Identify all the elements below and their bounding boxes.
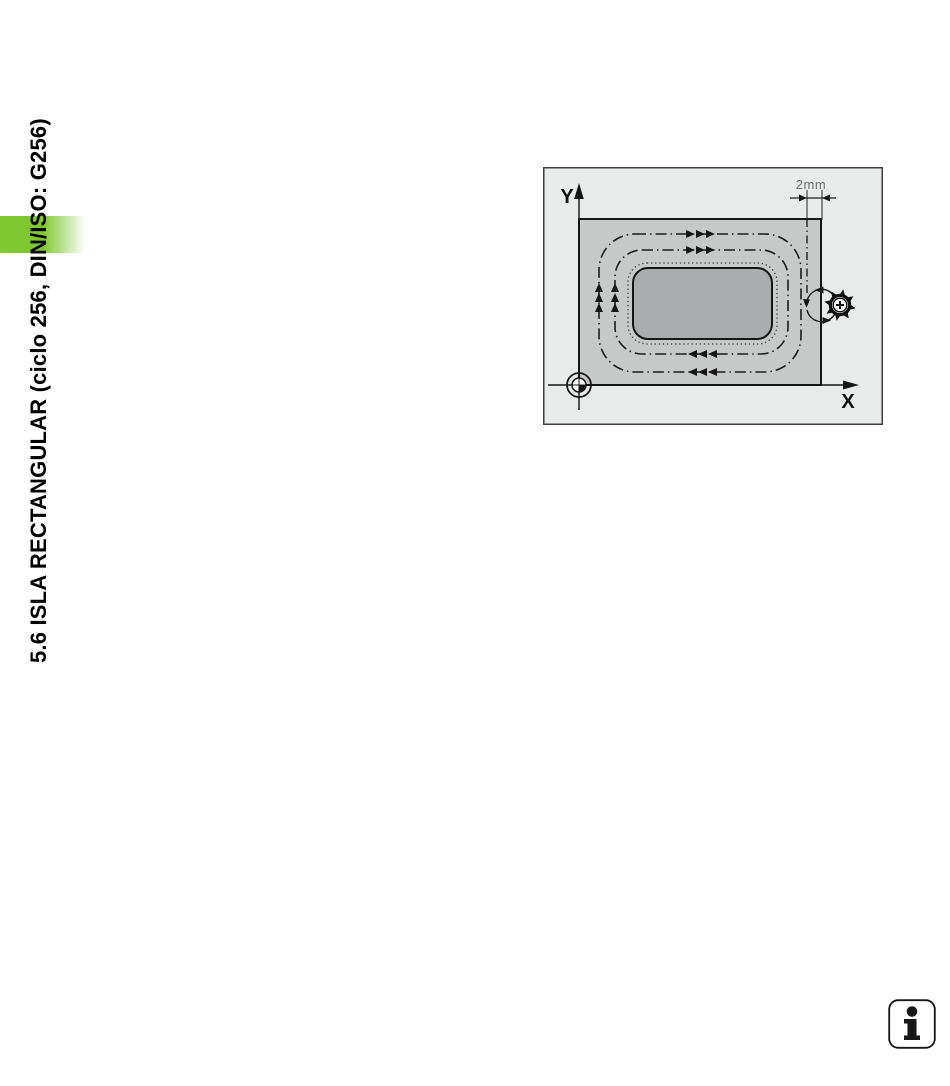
info-box [888,999,936,1049]
y-axis-label: Y [560,186,574,208]
chapter-title: 5.6 ISLA RECTANGULAR (ciclo 256, DIN/ISO… [26,118,52,663]
manual-page: { "chapter": { "title": "5.6 ISLA RECTAN… [0,0,950,1086]
info-icon [888,999,936,1049]
dimension-label: 2mm [796,177,826,192]
island-stud [633,268,772,339]
machining-diagram: 2mm Y X [543,167,883,425]
x-axis-label: X [841,391,855,413]
